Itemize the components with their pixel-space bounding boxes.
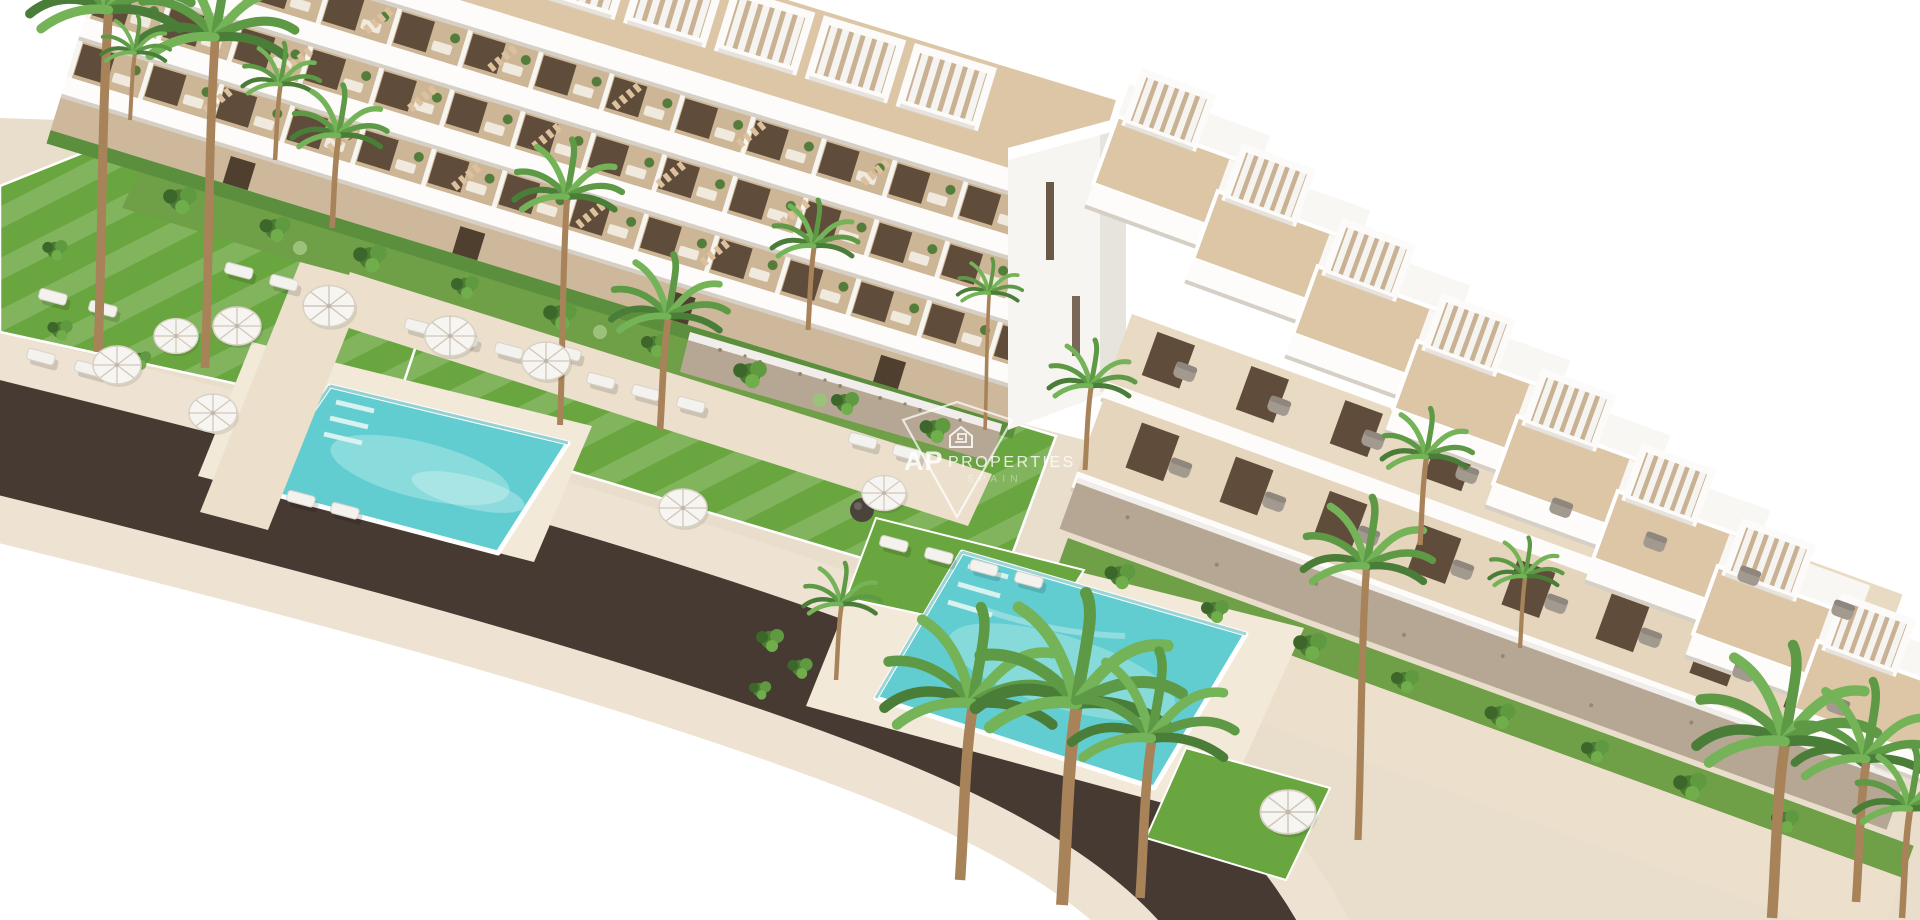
brand-sub: SPAIN [967, 473, 1023, 485]
scene-canvas: AP PROPERTIES SPAIN [0, 0, 1920, 920]
brand-rest: PROPERTIES [948, 454, 1076, 471]
tower-window [1046, 182, 1054, 260]
brand-bold: AP [904, 446, 944, 476]
render-image: AP PROPERTIES SPAIN [0, 0, 1920, 920]
tower-window [1072, 296, 1080, 356]
